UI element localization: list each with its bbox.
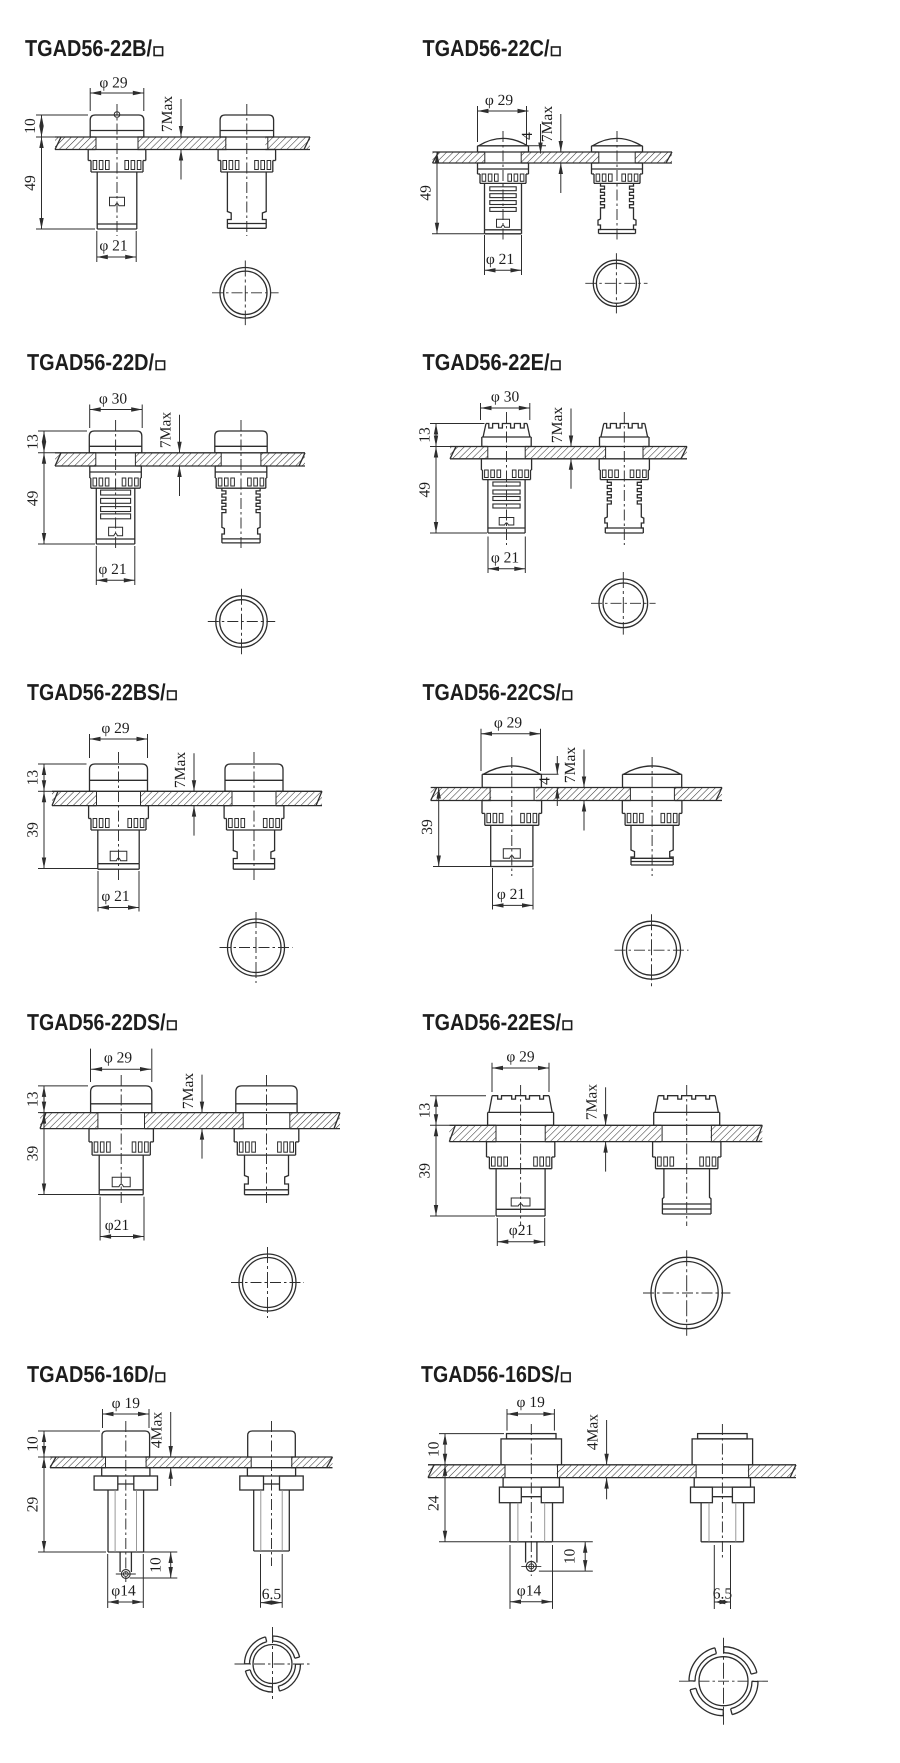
svg-text:10: 10 [22, 118, 39, 134]
svg-text:φ 29: φ 29 [99, 75, 128, 92]
svg-text:7Max: 7Max [584, 1084, 601, 1120]
svg-text:4Max: 4Max [585, 1414, 602, 1450]
svg-text:TGAD56-22E/: TGAD56-22E/ [423, 349, 551, 375]
svg-text:φ 21: φ 21 [486, 251, 514, 268]
svg-text:φ21: φ21 [509, 1222, 533, 1239]
svg-text:φ21: φ21 [105, 1217, 129, 1234]
svg-text:10: 10 [426, 1441, 443, 1457]
svg-text:4: 4 [519, 132, 536, 140]
svg-text:φ 29: φ 29 [494, 715, 523, 732]
svg-text:7Max: 7Max [549, 407, 566, 443]
svg-text:φ 29: φ 29 [101, 720, 130, 737]
svg-text:4: 4 [537, 777, 554, 785]
svg-text:29: 29 [25, 1497, 42, 1513]
svg-text:φ 19: φ 19 [517, 1394, 546, 1411]
svg-text:φ 21: φ 21 [101, 888, 129, 905]
svg-text:7Max: 7Max [172, 752, 189, 788]
svg-text:24: 24 [426, 1495, 443, 1511]
svg-text:10: 10 [561, 1548, 578, 1564]
svg-text:39: 39 [419, 819, 436, 835]
svg-text:7Max: 7Max [180, 1073, 197, 1109]
svg-text:φ 19: φ 19 [112, 1395, 141, 1412]
svg-text:49: 49 [25, 490, 42, 506]
svg-text:TGAD56-16DS/: TGAD56-16DS/ [421, 1361, 560, 1387]
svg-text:φ 29: φ 29 [485, 92, 514, 109]
svg-text:6.5: 6.5 [713, 1586, 733, 1603]
svg-text:φ 21: φ 21 [497, 886, 525, 903]
svg-text:13: 13 [25, 434, 42, 450]
svg-text:φ 29: φ 29 [104, 1050, 133, 1067]
svg-text:13: 13 [417, 1103, 434, 1119]
svg-text:φ 30: φ 30 [99, 391, 128, 408]
svg-text:10: 10 [25, 1436, 42, 1452]
svg-text:TGAD56-22BS/: TGAD56-22BS/ [27, 679, 166, 705]
svg-text:49: 49 [417, 482, 434, 498]
svg-text:39: 39 [25, 822, 42, 838]
svg-text:TGAD56-22C/: TGAD56-22C/ [423, 35, 551, 61]
svg-text:TGAD56-16D/: TGAD56-16D/ [27, 1361, 155, 1387]
svg-text:φ14: φ14 [111, 1583, 136, 1600]
svg-text:7Max: 7Max [158, 412, 175, 448]
svg-text:13: 13 [25, 1091, 42, 1107]
svg-text:φ14: φ14 [517, 1583, 542, 1600]
svg-text:10: 10 [148, 1557, 165, 1573]
svg-text:39: 39 [25, 1146, 42, 1162]
svg-text:TGAD56-22D/: TGAD56-22D/ [27, 349, 155, 375]
svg-text:TGAD56-22ES/: TGAD56-22ES/ [423, 1009, 562, 1035]
svg-text:φ 21: φ 21 [491, 550, 519, 567]
svg-text:4Max: 4Max [149, 1412, 166, 1448]
svg-text:49: 49 [22, 175, 39, 191]
svg-text:TGAD56-22DS/: TGAD56-22DS/ [27, 1009, 166, 1035]
svg-text:φ 21: φ 21 [98, 561, 126, 578]
svg-text:7Max: 7Max [562, 747, 579, 783]
svg-text:13: 13 [25, 770, 42, 786]
svg-text:7Max: 7Max [159, 96, 176, 132]
svg-text:φ 21: φ 21 [99, 238, 127, 255]
svg-text:φ 30: φ 30 [491, 389, 520, 406]
svg-text:TGAD56-22CS/: TGAD56-22CS/ [423, 679, 562, 705]
svg-text:TGAD56-22B/: TGAD56-22B/ [25, 35, 153, 61]
svg-text:φ 29: φ 29 [506, 1049, 535, 1066]
svg-text:6.5: 6.5 [262, 1586, 282, 1603]
svg-text:39: 39 [417, 1163, 434, 1179]
svg-text:49: 49 [418, 185, 435, 201]
svg-text:13: 13 [417, 427, 434, 443]
svg-text:7Max: 7Max [539, 106, 556, 142]
